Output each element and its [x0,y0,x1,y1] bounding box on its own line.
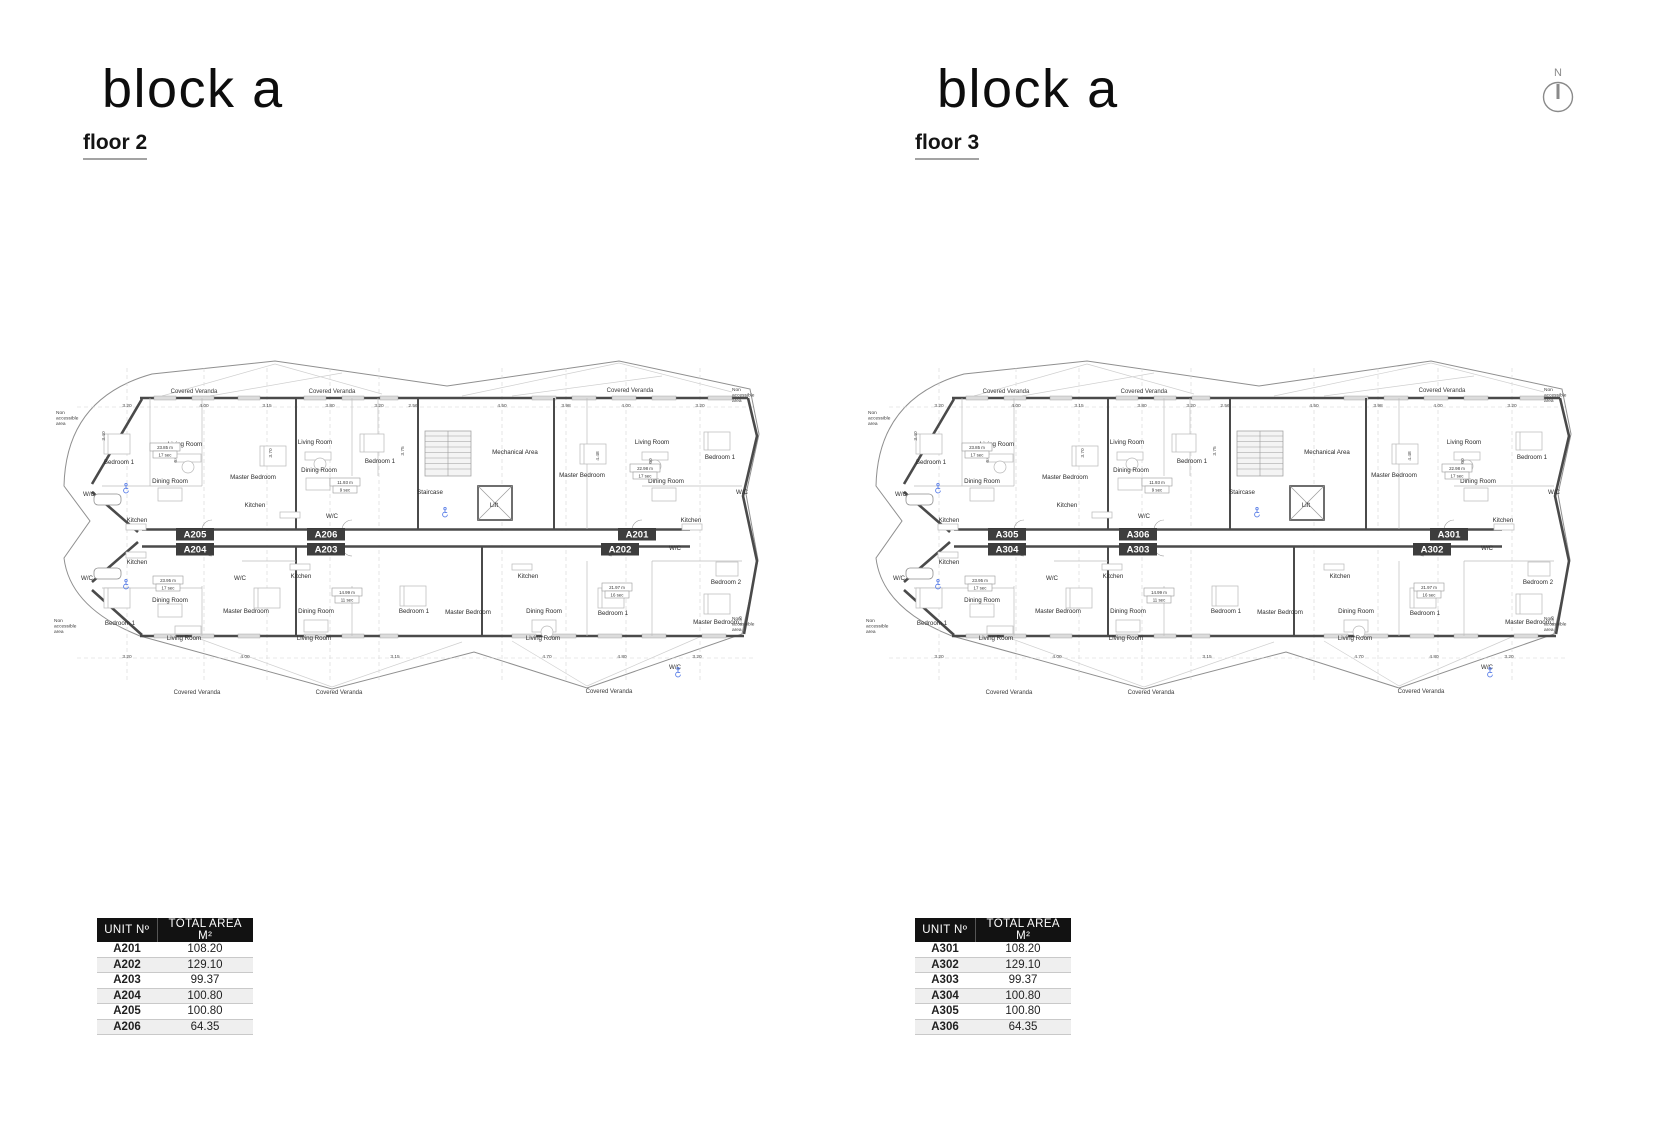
metric-time-label: 9 sec [1152,487,1163,492]
metric-time-label: 17 sec [639,473,653,478]
dimension-label: 4.80 [617,654,627,660]
unit-id-cell: A205 [97,1004,157,1020]
dimension-label: 4.48 [1407,451,1413,461]
veranda-label: Covered Veranda [309,389,356,395]
dimension-label: 4.00 [1433,403,1443,409]
unit-column-header: UNIT Nº [915,918,975,942]
unit-column-header: UNIT Nº [97,918,157,942]
room-label: Kitchen [681,517,702,524]
dimension-label: 4.00 [621,403,631,409]
dimension-label: 3.40 [1550,616,1556,626]
north-indicator: N [1534,60,1582,118]
room-label: Bedroom 1 [1177,458,1208,465]
dimension-label: 4.50 [1309,403,1319,409]
unit-badge-label: A301 [1438,530,1461,541]
area-table-floor-3: UNIT Nº TOTAL AREA M² A301108.20A302129.… [915,918,1071,1035]
veranda-label: Covered Veranda [1128,690,1175,696]
table-row: A202129.10 [97,957,253,973]
room-label: W/C [669,664,682,671]
room-label: Kitchen [245,502,266,509]
room-label: Dining Room [298,608,334,615]
metric-distance-label: 23.95 m [160,578,176,583]
room-label: W/C [1548,489,1561,496]
unit-badge-label: A303 [1127,545,1150,556]
unit-badge-label: A305 [996,530,1019,541]
room-label: Bedroom 1 [1410,610,1441,617]
dimension-label: 3.75 [400,446,406,456]
veranda-label: Covered Veranda [607,388,654,394]
dimension-label: 3.40 [101,431,107,441]
dimension-label: 4.50 [497,403,507,409]
north-needle [1557,84,1560,99]
room-label: Mechanical Area [1304,449,1350,456]
veranda-label: Covered Veranda [986,690,1033,696]
dimension-label: 3.75 [1212,446,1218,456]
unit-id-cell: A202 [97,957,157,973]
metric-distance-label: 23.95 m [972,578,988,583]
room-label: Master Bedroom [445,609,491,616]
room-label: W/C [1046,575,1059,582]
dimension-label: 3.20 [122,403,132,409]
metric-distance-label: 23.85 m [969,445,985,450]
room-label: W/C [1481,545,1494,552]
room-label: Kitchen [1057,502,1078,509]
unit-badge-label: A203 [315,545,338,556]
dimension-label: 3.20 [934,403,944,409]
floorplan-floor-2-svg: Bedroom 1Living RoomDining RoomMaster Be… [42,336,765,708]
dimension-label: 3.15 [262,403,272,409]
room-label: Living Room [1110,439,1144,446]
metric-distance-label: 11.93 m [1149,480,1165,485]
veranda-label: Covered Veranda [174,690,221,696]
non-accessible-label: Nonaccessiblearea [56,410,79,427]
room-label: Living Room [526,635,560,642]
unit-id-cell: A306 [915,1019,975,1035]
dimension-label: 4.70 [1354,654,1364,660]
dimension-label: 3.15 [390,654,400,660]
veranda-label: Covered Veranda [983,389,1030,395]
dimension-label: 3.40 [738,616,744,626]
room-label: Bedroom 1 [705,454,736,461]
dimension-label: 3.20 [1504,654,1514,660]
room-label: Master Bedroom [559,472,605,479]
dimension-label: 3.70 [268,448,274,458]
dimension-label: 3.15 [1202,654,1212,660]
room-label: Bedroom 1 [104,459,135,466]
unit-area-cell: 108.20 [157,942,253,957]
room-label: W/C [81,575,94,582]
dimension-label: 3.15 [1074,403,1084,409]
unit-id-cell: A303 [915,973,975,989]
dimension-label: 3.20 [692,654,702,660]
room-label: Bedroom 1 [399,608,430,615]
unit-badge-label: A204 [184,545,207,556]
dimension-label: 4.00 [199,403,209,409]
metric-distance-label: 22.98 m [1449,466,1465,471]
unit-id-cell: A301 [915,942,975,957]
unit-area-cell: 99.37 [975,973,1071,989]
room-label: Bedroom 1 [1211,608,1242,615]
unit-area-cell: 100.80 [975,1004,1071,1020]
area-table-floor-2: UNIT Nº TOTAL AREA M² A201108.20A202129.… [97,918,253,1035]
table-row: A304100.80 [915,988,1071,1004]
veranda-label: Covered Veranda [171,389,218,395]
table-row: A30664.35 [915,1019,1071,1035]
room-label: W/C [893,575,906,582]
unit-area-cell: 99.37 [157,973,253,989]
dimension-label: 4.00 [1011,403,1021,409]
metric-time-label: 17 sec [974,585,988,590]
unit-id-cell: A305 [915,1004,975,1020]
metric-time-label: 17 sec [971,452,985,457]
dimension-label: 3.98 [1373,403,1383,409]
unit-id-cell: A203 [97,973,157,989]
room-label: Bedroom 1 [365,458,396,465]
veranda-label: Covered Veranda [1121,389,1168,395]
unit-badge-label: A302 [1421,545,1444,556]
table-row: A302129.10 [915,957,1071,973]
room-label: Master Bedroom [223,608,269,615]
room-label: Living Room [298,439,332,446]
room-label: Kitchen [1330,573,1351,580]
room-label: Living Room [635,439,669,446]
room-label: Mechanical Area [492,449,538,456]
non-accessible-label: Nonaccessiblearea [868,410,891,427]
dimension-label: 4.80 [1429,654,1439,660]
metric-distance-label: 14.99 m [339,590,355,595]
non-accessible-label: Nonaccessiblearea [866,618,889,635]
room-label: Kitchen [1493,517,1514,524]
metric-distance-label: 22.98 m [637,466,653,471]
metric-time-label: 11 sec [1153,597,1166,602]
room-label: Master Bedroom [1042,474,1088,481]
unit-id-cell: A206 [97,1019,157,1035]
room-label: Living Room [1338,635,1372,642]
room-label: W/C [83,491,96,498]
block-title-right: block a [937,58,1119,120]
area-column-header: TOTAL AREA M² [157,918,253,942]
dimension-label: 3.20 [1186,403,1196,409]
floorplan-sheet: block a floor 2 block a floor 3 N [0,0,1663,1134]
room-label: W/C [326,513,339,520]
floor-label-left: floor 2 [83,131,147,160]
room-label: Kitchen [939,517,960,524]
room-label: Dining Room [964,478,1000,485]
metric-distance-label: 11.93 m [337,480,353,485]
dimension-label: 3.20 [122,654,132,660]
room-label: Bedroom 1 [598,610,629,617]
floor-label-right: floor 3 [915,131,979,160]
dimension-label: 3.70 [1080,448,1086,458]
dimension-label: 3.80 [1137,403,1147,409]
room-label: Bedroom 1 [916,459,947,466]
room-label: Dining Room [152,478,188,485]
metric-distance-label: 14.99 m [1151,590,1167,595]
metric-distance-label: 21.97 m [1421,585,1437,590]
room-label: Master Bedroom [230,474,276,481]
room-label: Kitchen [1103,573,1124,580]
metric-time-label: 17 sec [1451,473,1465,478]
unit-area-cell: 100.80 [975,988,1071,1004]
unit-id-cell: A302 [915,957,975,973]
metric-time-label: 17 sec [162,585,176,590]
block-title-left: block a [102,58,284,120]
table-row: A205100.80 [97,1004,253,1020]
floorplan-floor-3: Bedroom 1Living RoomDining RoomMaster Be… [854,336,1577,708]
metric-time-label: 9 sec [340,487,351,492]
room-label: Bedroom 2 [711,579,742,586]
veranda-label: Covered Veranda [1398,689,1445,695]
room-label: Kitchen [127,559,148,566]
floorplan-floor-2: Bedroom 1Living RoomDining RoomMaster Be… [42,336,765,708]
room-label: W/C [895,491,908,498]
table-row: A201108.20 [97,942,253,957]
room-label: Dining Room [152,597,188,604]
floorplan-floor-3-svg: Bedroom 1Living RoomDining RoomMaster Be… [854,336,1577,708]
unit-area-cell: 100.80 [157,988,253,1004]
room-label: Bedroom 1 [1517,454,1548,461]
room-label: Dining Room [1113,467,1149,474]
unit-id-cell: A204 [97,988,157,1004]
north-arrow-icon: N [1534,60,1582,118]
room-label: W/C [234,575,247,582]
dimension-label: 3.80 [325,403,335,409]
room-label: Bedroom 1 [105,620,136,627]
dimension-label: 2.56 [408,403,418,409]
dimension-label: 3.20 [695,403,705,409]
metric-distance-label: 23.85 m [157,445,173,450]
metric-time-label: 16 sec [1423,592,1437,597]
dimension-label: 4.00 [240,654,250,660]
table-row: A204100.80 [97,988,253,1004]
table-row: A20399.37 [97,973,253,989]
dimension-label: 2.56 [1220,403,1230,409]
room-label: Living Room [1109,635,1143,642]
room-label: Dining Room [1338,608,1374,615]
dimension-label: 4.70 [542,654,552,660]
room-label: Kitchen [127,517,148,524]
unit-badge-label: A205 [184,530,207,541]
unit-area-cell: 108.20 [975,942,1071,957]
dimension-label: 4.00 [1052,654,1062,660]
dimension-label: 3.40 [913,431,919,441]
dimension-label: 3.20 [374,403,384,409]
veranda-label: Covered Veranda [316,690,363,696]
unit-badge-label: A306 [1127,530,1150,541]
room-label: Dining Room [1110,608,1146,615]
unit-area-cell: 129.10 [157,957,253,973]
veranda-label: Covered Veranda [586,689,633,695]
room-label: Living Room [167,635,201,642]
unit-area-cell: 64.35 [975,1019,1071,1035]
table-row: A20664.35 [97,1019,253,1035]
room-label: Living Room [979,635,1013,642]
north-label: N [1554,67,1562,79]
room-label: Master Bedroom [1035,608,1081,615]
unit-badge-label: A304 [996,545,1019,556]
metric-time-label: 17 sec [159,452,173,457]
unit-badge-label: A202 [609,545,632,556]
unit-id-cell: A304 [915,988,975,1004]
veranda-label: Covered Veranda [1419,388,1466,394]
unit-area-cell: 100.80 [157,1004,253,1020]
metric-time-label: 16 sec [611,592,625,597]
dimension-label: 4.48 [595,451,601,461]
room-label: Master Bedroom [1371,472,1417,479]
room-label: Dining Room [526,608,562,615]
unit-id-cell: A201 [97,942,157,957]
room-label: Living Room [297,635,331,642]
room-label: Kitchen [291,573,312,580]
metric-distance-label: 21.97 m [609,585,625,590]
area-column-header: TOTAL AREA M² [975,918,1071,942]
unit-badge-label: A201 [626,530,649,541]
room-label: Dining Room [301,467,337,474]
table-row: A30399.37 [915,973,1071,989]
room-label: Kitchen [939,559,960,566]
room-label: Living Room [1447,439,1481,446]
room-label: W/C [669,545,682,552]
room-label: Staircase [1229,489,1255,496]
table-row: A301108.20 [915,942,1071,957]
room-label: W/C [736,489,749,496]
unit-area-cell: 64.35 [157,1019,253,1035]
room-label: Bedroom 2 [1523,579,1554,586]
unit-area-cell: 129.10 [975,957,1071,973]
unit-badge-label: A206 [315,530,338,541]
room-label: Master Bedroom [1257,609,1303,616]
room-label: W/C [1138,513,1151,520]
room-label: Staircase [417,489,443,496]
non-accessible-label: Nonaccessiblearea [54,618,77,635]
room-label: Bedroom 1 [917,620,948,627]
dimension-label: 3.20 [934,654,944,660]
room-label: W/C [1481,664,1494,671]
room-label: Lift [1302,502,1311,509]
room-label: Dining Room [964,597,1000,604]
dimension-label: 3.20 [1507,403,1517,409]
room-label: Lift [490,502,499,509]
room-label: Kitchen [518,573,539,580]
table-row: A305100.80 [915,1004,1071,1020]
dimension-label: 3.98 [561,403,571,409]
metric-time-label: 11 sec [341,597,354,602]
